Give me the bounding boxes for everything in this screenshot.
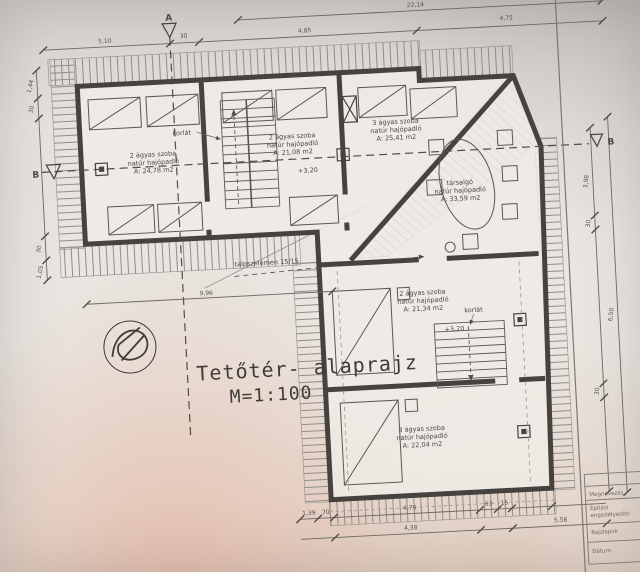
dim-label: 30 bbox=[35, 245, 43, 254]
architect-stamp bbox=[103, 320, 158, 375]
dim-label: 4,75 bbox=[499, 15, 513, 23]
dim-label: 6,50 bbox=[607, 307, 616, 321]
dim-label: 70 bbox=[322, 509, 330, 516]
korlat-label-upper: korlát bbox=[172, 129, 191, 138]
dim-label: 30 bbox=[593, 387, 601, 396]
floor-plan-canvas: 22,14 5,10 30 4,85 4,75 1,44 30 30 1,05 … bbox=[0, 0, 640, 572]
dim-label: 1,39 bbox=[302, 510, 316, 518]
dim-label: 15 bbox=[501, 499, 509, 506]
dim-label: 4,38 bbox=[404, 524, 418, 532]
dim-label: 5,58 bbox=[554, 516, 568, 524]
rotated-sheet: 22,14 5,10 30 4,85 4,75 1,44 30 30 1,05 … bbox=[21, 0, 640, 572]
section-marker-a-label: A bbox=[165, 13, 173, 23]
room-label-2: 2 ágyas szoba natúr hajópadló A: 21,08 m… bbox=[266, 131, 319, 158]
roof-band-top-right bbox=[420, 46, 513, 79]
dim-label: 5,10 bbox=[98, 38, 112, 46]
section-marker-a: A bbox=[162, 13, 177, 38]
dim-label: 4,70 bbox=[403, 504, 417, 512]
dim-label: 30 bbox=[28, 105, 36, 114]
dim-label: 4,85 bbox=[298, 27, 312, 35]
title-block-row: Dátum bbox=[592, 547, 611, 555]
dim-label: 1,05 bbox=[36, 265, 46, 280]
dim-label: 22,14 bbox=[407, 1, 425, 9]
room-label-5: 3 ágyas szoba natúr hajópadló A: 22,04 m… bbox=[396, 424, 449, 451]
section-marker-b-right: B bbox=[590, 133, 614, 148]
korlat-label-lower: korlát bbox=[464, 305, 483, 314]
dim-label: 9,96 bbox=[199, 290, 213, 298]
drawing-scale: M=1:100 bbox=[229, 383, 313, 408]
room-label-4: 2 ágyas szoba natúr hajópadló A: 21,34 m… bbox=[397, 287, 450, 314]
level-mark-lower: +3,20 bbox=[444, 325, 464, 334]
scanned-floor-plan-photo: 22,14 5,10 30 4,85 4,75 1,44 30 30 1,05 … bbox=[0, 0, 640, 572]
section-marker-b-right-label: B bbox=[607, 137, 615, 147]
dim-label: 3,98 bbox=[582, 174, 591, 188]
title-block-row: Rajzlapok bbox=[591, 529, 619, 536]
dim-label: 1,44 bbox=[26, 79, 36, 94]
section-marker-b-left-label: B bbox=[32, 171, 40, 181]
dim-label: 30 bbox=[180, 33, 188, 40]
title-block-row: Építési bbox=[590, 503, 609, 512]
level-mark-upper: +3,20 bbox=[298, 166, 318, 175]
title-block-row: Megnevezés bbox=[589, 489, 624, 498]
room-label-1: 2 ágyas szoba natúr hajópadló A: 24,78 m… bbox=[127, 149, 180, 176]
dim-label: 30 bbox=[585, 219, 593, 228]
title-block: Megnevezés Építési engedélyezési Rajzlap… bbox=[584, 470, 640, 564]
dim-label: 63 bbox=[485, 500, 493, 507]
room-label-3: 3 ágyas szoba natúr hajópadló A: 25,41 m… bbox=[370, 116, 423, 143]
